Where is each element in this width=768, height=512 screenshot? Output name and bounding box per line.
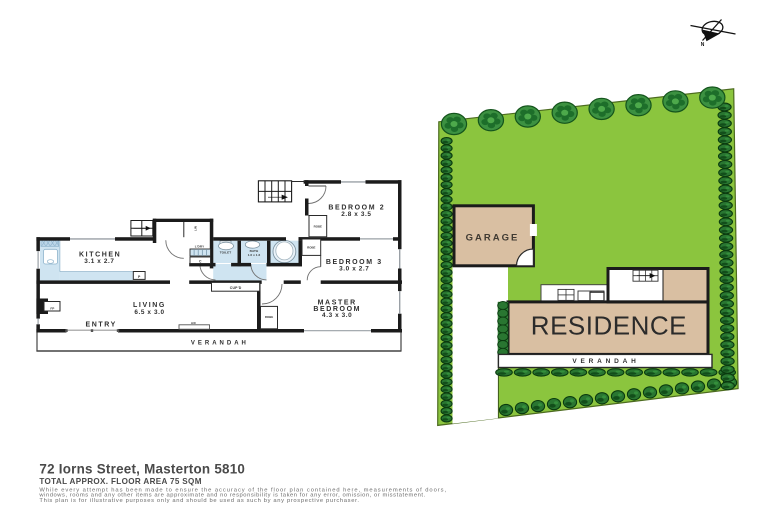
svg-text:3.1 x 2.7: 3.1 x 2.7 [84, 258, 114, 265]
svg-text:6.5 x 3.0: 6.5 x 3.0 [134, 309, 164, 316]
svg-text:RESIDENCE: RESIDENCE [531, 311, 687, 341]
svg-text:A/C: A/C [191, 321, 197, 325]
svg-text:72 Iorns Street, Masterton 581: 72 Iorns Street, Masterton 5810 [39, 462, 245, 477]
svg-text:N: N [701, 42, 705, 48]
svg-text:ENTRY: ENTRY [85, 321, 116, 328]
svg-text:GARAGE: GARAGE [466, 232, 520, 243]
svg-text:2.8 x 3.5: 2.8 x 3.5 [341, 211, 371, 218]
svg-text:ROBE: ROBE [265, 315, 273, 319]
svg-text:3.0 x 2.7: 3.0 x 2.7 [339, 265, 369, 272]
svg-text:TOILET: TOILET [220, 251, 232, 255]
svg-text:CUP'D: CUP'D [230, 286, 242, 290]
svg-text:1.6 x 1.6: 1.6 x 1.6 [248, 253, 261, 257]
svg-text:ROBE: ROBE [314, 225, 322, 229]
svg-text:LIN: LIN [194, 225, 198, 231]
svg-text:VERANDAH: VERANDAH [572, 358, 639, 365]
svg-text:TOTAL APPROX. FLOOR AREA 75 SQ: TOTAL APPROX. FLOOR AREA 75 SQM [39, 477, 201, 486]
svg-text:L'DRY: L'DRY [195, 244, 205, 248]
svg-text:ROBE: ROBE [307, 246, 315, 250]
svg-text:4.3 x 3.0: 4.3 x 3.0 [322, 312, 352, 319]
svg-text:This plan is for illustrative: This plan is for illustrative purposes o… [39, 498, 359, 504]
svg-text:FP: FP [50, 307, 54, 311]
svg-text:VERANDAH: VERANDAH [191, 341, 249, 347]
svg-text:LIVING: LIVING [133, 302, 166, 309]
